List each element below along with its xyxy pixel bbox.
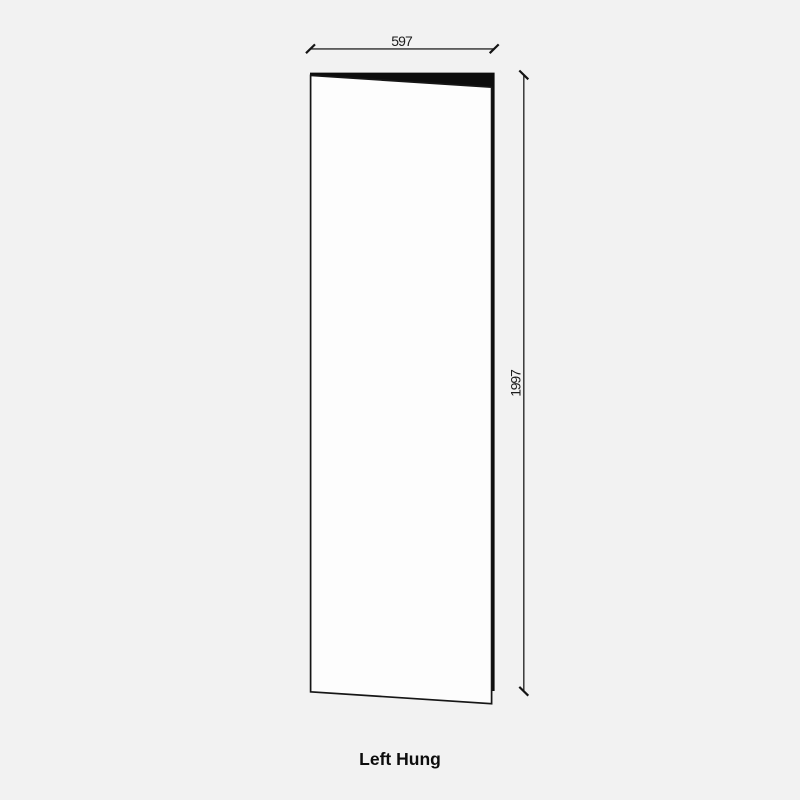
svg-text:Left Hung: Left Hung	[359, 749, 441, 769]
svg-text:1997: 1997	[508, 369, 524, 397]
svg-text:597: 597	[391, 33, 413, 49]
